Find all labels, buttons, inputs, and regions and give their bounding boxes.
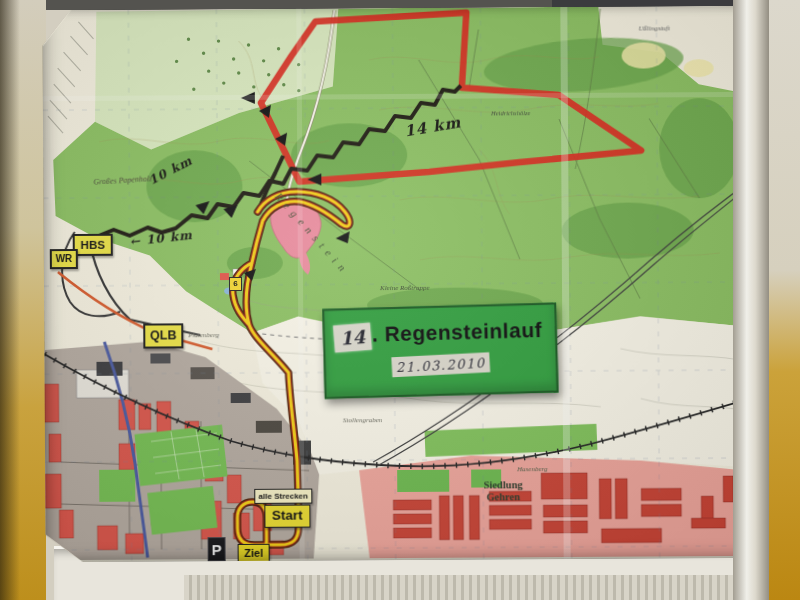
place-name-heidrichshoelze: Heidrichshölze — [491, 109, 530, 116]
place-name-platenberg: Platenberg — [188, 331, 219, 339]
wall-right — [769, 0, 800, 600]
all-courses-label: alle Strecken — [254, 489, 312, 504]
wall-left-corner-shadow — [0, 0, 20, 600]
photo-of-course-map: { "sign": { "edition": "14", "title_suff… — [0, 0, 800, 600]
marker-wr: WR — [50, 249, 78, 269]
place-name-siedlung-gehren: Siedlung Gehren — [471, 479, 535, 504]
marker-hbs: HBS — [73, 234, 113, 256]
place-name-usslingstuft: Ußlingstuft — [638, 24, 670, 32]
radiator-fins — [184, 575, 744, 600]
finish-label: Ziel — [238, 544, 270, 563]
sign-edition-patch: 14 — [333, 323, 372, 353]
map-paper: HBS WR QLB alle Strecken Start Ziel P 6 … — [42, 6, 759, 562]
road-shield-6: 6 — [229, 277, 242, 291]
sign-date-patch: 21.03.2010 — [391, 352, 490, 377]
sign-title: . Regensteinlauf — [372, 318, 543, 347]
direction-arrow-icon: ← — [129, 234, 142, 249]
wall-pipe — [733, 0, 769, 600]
marker-qlb: QLB — [143, 323, 183, 348]
place-name-hasenberg: Hasenberg — [517, 465, 548, 473]
place-name-stollengraben: Stollengraben — [343, 416, 382, 424]
start-label: Start — [264, 505, 310, 528]
place-name-rosstrappe: Kleine Roßtrappe — [380, 284, 430, 292]
event-sign: 14 . Regensteinlauf 21.03.2010 — [322, 303, 558, 399]
parking-label: P — [208, 537, 226, 561]
settlement-area — [359, 454, 760, 558]
